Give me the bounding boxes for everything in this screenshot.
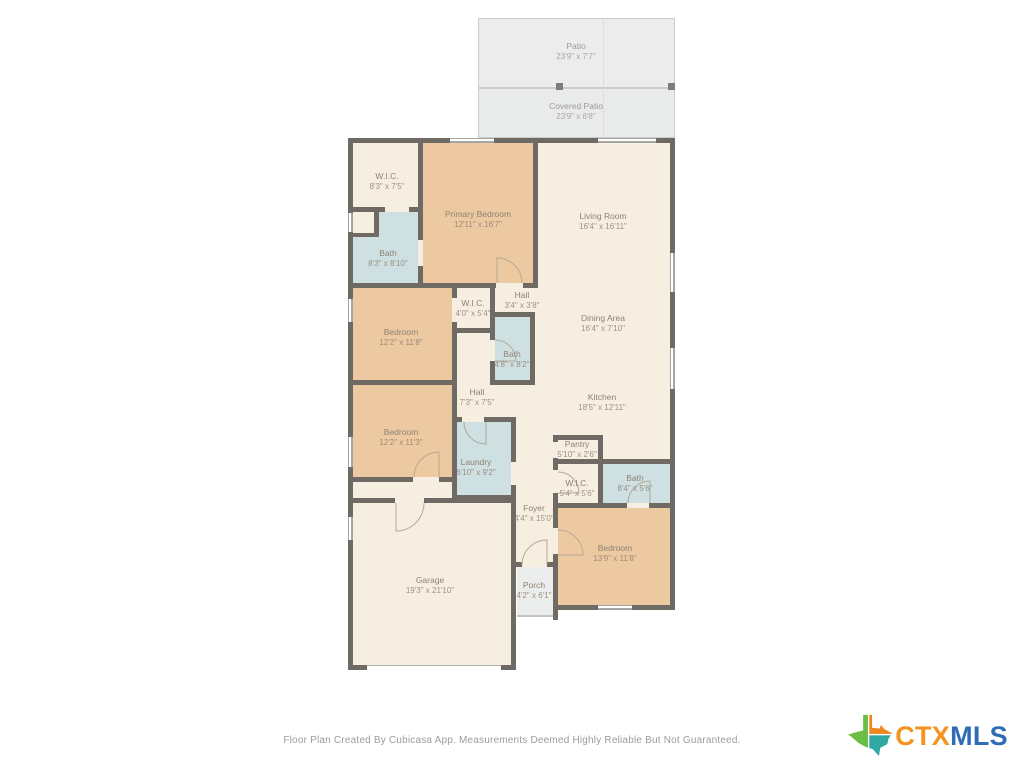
garage-door-opening (367, 665, 501, 670)
room-dims-text: 8'3" x 7'5" (370, 182, 405, 193)
door-gap (627, 503, 649, 508)
label-foyer: Foyer 4'4" x 15'0" (514, 503, 553, 525)
wall-segment (598, 459, 603, 508)
wall-segment (350, 233, 379, 237)
room-name-text: Covered Patio (549, 101, 603, 112)
ctxmls-logo: CTXMLS (848, 714, 1008, 758)
room-dims-text: 5'10" x 2'6" (557, 450, 596, 461)
room-dims-text: 12'2" x 11'8" (379, 338, 422, 349)
texas-state-icon (848, 714, 892, 758)
wall-segment (495, 312, 535, 317)
room-dims-text: 12'2" x 11'3" (379, 438, 422, 449)
window (598, 138, 656, 143)
room-name-text: Hall (460, 387, 495, 398)
floor-plan-page: { "floor_plan": { "rooms": { "patio": {"… (0, 0, 1024, 768)
room-name-text: Bedroom (379, 427, 422, 438)
room-name-text: Bath (368, 248, 407, 259)
wall-segment (533, 140, 538, 288)
wall-segment (530, 317, 535, 385)
room-dims-text: 16'4" x 7'10" (581, 324, 625, 335)
porch-edge-line (517, 615, 553, 617)
label-wic-3: W.I.C. 5'4" x 5'6" (560, 478, 595, 500)
label-garage: Garage 19'3" x 21'10" (406, 575, 454, 597)
room-dims-text: 8'4" x 5'6" (618, 484, 653, 495)
room-dims-text: 4'2" x 6'1" (517, 591, 552, 602)
wall-segment (455, 495, 515, 500)
door-gap (522, 562, 547, 567)
window (348, 299, 353, 322)
window (348, 213, 353, 232)
label-bath-hall: Bath 4'8" x 8'2" (495, 349, 530, 371)
window (670, 253, 675, 292)
label-bedroom-3: Bedroom 12'2" x 11'3" (379, 427, 422, 449)
label-bath-3: Bath 8'4" x 5'6" (618, 473, 653, 495)
label-patio: Patio 23'9" x 7'7" (556, 41, 595, 63)
label-kitchen: Kitchen 18'5" x 12'11" (578, 392, 626, 414)
window (348, 437, 353, 467)
label-bedroom-2: Bedroom 12'2" x 11'8" (379, 327, 422, 349)
window (670, 348, 675, 389)
door-gap (418, 240, 423, 266)
ctxmls-wordmark: CTXMLS (895, 714, 1008, 758)
wall-segment (452, 385, 457, 500)
room-name-text: W.I.C. (560, 478, 595, 489)
label-wic-primary: W.I.C. 8'3" x 7'5" (370, 171, 405, 193)
patio-post (668, 83, 675, 90)
room-dims-text: 16'4" x 16'11" (579, 222, 627, 233)
room-name-text: W.I.C. (456, 298, 491, 309)
label-wic-2: W.I.C. 4'0" x 5'4" (456, 298, 491, 320)
label-bath-primary: Bath 8'3" x 8'10" (368, 248, 407, 270)
wall-segment (455, 328, 495, 333)
patio-divider-line (603, 19, 604, 137)
room-dims-text: 23'9" x 6'8" (549, 112, 603, 123)
room-dims-text: 18'5" x 12'11" (578, 403, 626, 414)
room-name-text: Porch (517, 580, 552, 591)
door-gap (395, 498, 424, 503)
bath-primary-vestibule (350, 212, 374, 233)
room-name-text: Bedroom (593, 543, 636, 554)
label-laundry: Laundry 6'10" x 9'2" (456, 457, 495, 479)
room-dims-text: 3'4" x 3'8" (505, 301, 540, 312)
label-hall-1: Hall 3'4" x 3'8" (505, 290, 540, 312)
room-name-text: Garage (406, 575, 454, 586)
room-dims-text: 12'11" x 16'7" (445, 220, 511, 231)
room-dims-text: 7'3" x 7'5" (460, 398, 495, 409)
window (598, 605, 632, 610)
wall-segment (511, 417, 516, 500)
room-dims-text: 19'3" x 21'10" (406, 586, 454, 597)
door-gap (385, 207, 409, 212)
door-gap (511, 462, 516, 485)
room-dims-text: 6'10" x 9'2" (456, 468, 495, 479)
label-living-room: Living Room 16'4" x 16'11" (579, 211, 627, 233)
room-name-text: Living Room (579, 211, 627, 222)
label-hall-2: Hall 7'3" x 7'5" (460, 387, 495, 409)
room-name-text: Kitchen (578, 392, 626, 403)
room-name-text: Bedroom (379, 327, 422, 338)
door-gap (462, 417, 484, 422)
room-name-text: Bath (618, 473, 653, 484)
label-pantry: Pantry 5'10" x 2'6" (557, 439, 596, 461)
wall-segment (495, 380, 535, 385)
door-gap (553, 528, 558, 554)
room-name-text: W.I.C. (370, 171, 405, 182)
window (450, 138, 494, 143)
logo-ctx-text: CTX (895, 721, 950, 751)
window (348, 517, 353, 540)
room-name-text: Laundry (456, 457, 495, 468)
room-name-text: Primary Bedroom (445, 209, 511, 220)
room-dims-text: 4'0" x 5'4" (456, 309, 491, 320)
label-primary-bedroom: Primary Bedroom 12'11" x 16'7" (445, 209, 511, 231)
wall-segment (348, 380, 455, 385)
room-dims-text: 4'4" x 15'0" (514, 514, 553, 525)
room-name-text: Patio (556, 41, 595, 52)
door-gap (413, 477, 439, 482)
room-name-text: Dining Area (581, 313, 625, 324)
logo-mls-text: MLS (950, 721, 1008, 751)
room-dims-text: 4'8" x 8'2" (495, 360, 530, 371)
label-dining-area: Dining Area 16'4" x 7'10" (581, 313, 625, 335)
room-name-text: Hall (505, 290, 540, 301)
label-porch: Porch 4'2" x 6'1" (517, 580, 552, 602)
label-bedroom-4: Bedroom 13'9" x 11'8" (593, 543, 636, 565)
wall-segment (553, 503, 675, 508)
room-name-text: Bath (495, 349, 530, 360)
patio-post (556, 83, 563, 90)
door-gap (553, 470, 558, 493)
wall-segment (418, 143, 423, 288)
wall-segment (511, 500, 516, 670)
room-dims-text: 23'9" x 7'7" (556, 52, 595, 63)
room-name-text: Foyer (514, 503, 553, 514)
door-gap (496, 283, 523, 288)
room-dims-text: 5'4" x 5'6" (560, 489, 595, 500)
room-name-text: Pantry (557, 439, 596, 450)
room-dims-text: 13'9" x 11'8" (593, 554, 636, 565)
label-covered-patio: Covered Patio 23'9" x 6'8" (549, 101, 603, 123)
room-dims-text: 8'3" x 8'10" (368, 259, 407, 270)
